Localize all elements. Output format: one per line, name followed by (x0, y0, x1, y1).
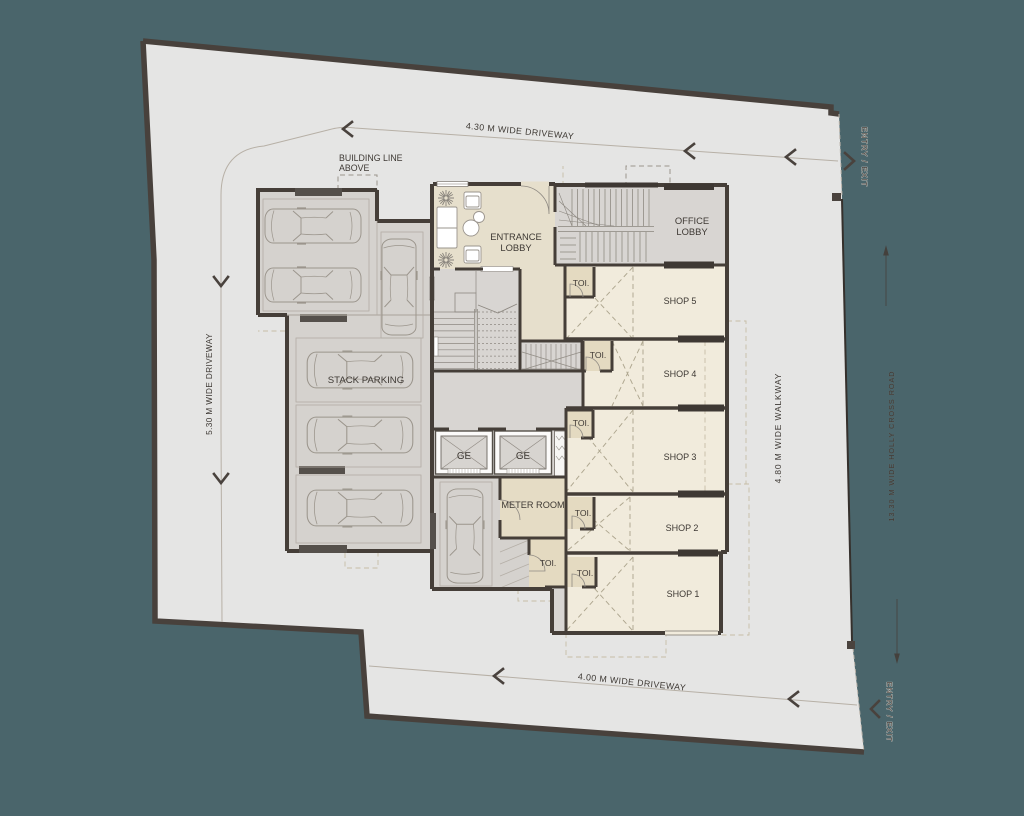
svg-text:TOI.: TOI. (573, 278, 590, 288)
svg-text:LOBBY: LOBBY (500, 242, 532, 253)
svg-text:TOI.: TOI. (573, 418, 590, 428)
svg-text:GE: GE (516, 451, 531, 462)
svg-text:METER ROOM: METER ROOM (501, 500, 564, 510)
svg-text:ENTRY / EXIT: ENTRY / EXIT (860, 127, 869, 188)
svg-text:GE: GE (457, 451, 472, 462)
svg-text:ENTRY / EXIT: ENTRY / EXIT (885, 682, 894, 743)
svg-text:SHOP 2: SHOP 2 (666, 523, 699, 533)
svg-text:TOI.: TOI. (590, 350, 607, 360)
svg-text:LOBBY: LOBBY (676, 226, 708, 237)
svg-text:ENTRANCE: ENTRANCE (490, 231, 542, 242)
svg-text:OFFICE: OFFICE (675, 215, 709, 226)
svg-text:BUILDING LINE: BUILDING LINE (339, 153, 403, 163)
svg-text:STACK PARKING: STACK PARKING (328, 375, 404, 386)
svg-text:SHOP 1: SHOP 1 (667, 589, 700, 599)
svg-text:SHOP 3: SHOP 3 (664, 452, 697, 462)
svg-text:SHOP 5: SHOP 5 (664, 296, 697, 306)
svg-text:TOI.: TOI. (540, 558, 557, 568)
svg-text:TOI.: TOI. (577, 568, 594, 578)
svg-text:ABOVE: ABOVE (339, 163, 369, 173)
svg-text:13.30 M WIDE HOLLY CROSS ROAD: 13.30 M WIDE HOLLY CROSS ROAD (887, 371, 896, 522)
svg-text:5.30 M WIDE DRIVEWAY: 5.30 M WIDE DRIVEWAY (205, 333, 214, 435)
svg-text:TOI.: TOI. (575, 508, 592, 518)
svg-text:4.80 M WIDE WALKWAY: 4.80 M WIDE WALKWAY (773, 373, 783, 484)
svg-text:SHOP 4: SHOP 4 (664, 369, 697, 379)
